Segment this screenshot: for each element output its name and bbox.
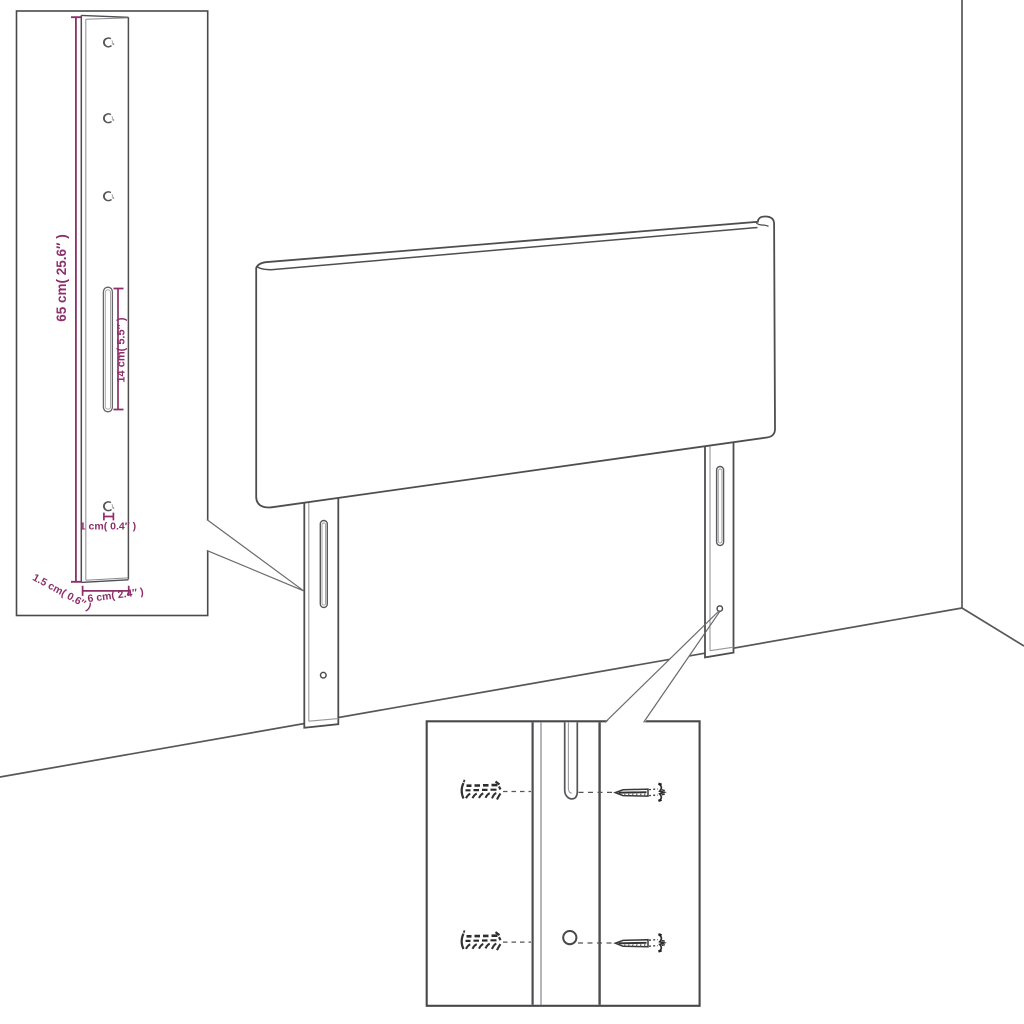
svg-text:14 cm( 5.5″ ): 14 cm( 5.5″ ) bbox=[116, 317, 128, 383]
svg-text:65 cm( 25.6″ ): 65 cm( 25.6″ ) bbox=[54, 234, 69, 322]
svg-text:1 cm( 0.4″ ): 1 cm( 0.4″ ) bbox=[80, 521, 136, 533]
